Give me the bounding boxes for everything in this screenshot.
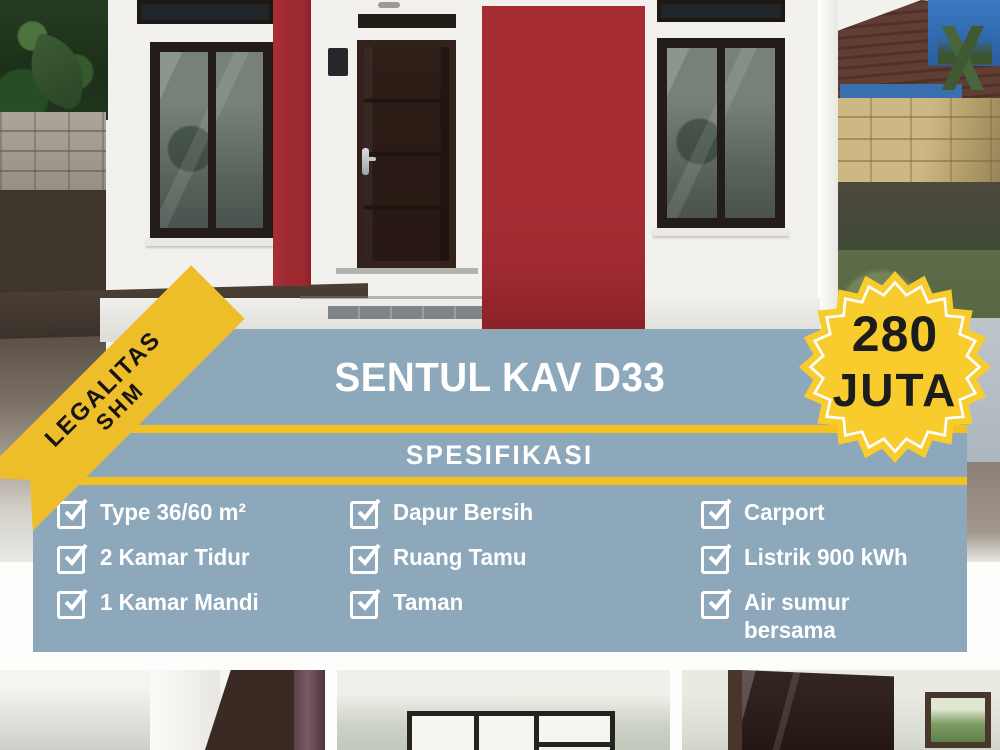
specification-panel: Type 36/60 m² 2 Kamar Tidur 1 Kamar Mand…: [33, 485, 967, 652]
door-transom: [358, 14, 456, 28]
spec-column-2: Dapur Bersih Ruang Tamu Taman: [350, 498, 670, 619]
concrete-block-wall: [0, 112, 106, 192]
spec-item-type: Type 36/60 m²: [57, 498, 352, 529]
spec-item-carport: Carport: [701, 498, 956, 529]
checked-checkbox-icon: [350, 546, 378, 574]
interior-photo-2: [337, 670, 670, 750]
price-amount: 280: [799, 305, 991, 363]
checked-checkbox-icon: [57, 501, 85, 529]
front-door: [357, 40, 456, 268]
door-frame: [294, 670, 325, 750]
spec-item-bathroom: 1 Kamar Mandi: [57, 588, 352, 619]
spec-item-garden: Taman: [350, 588, 670, 619]
left-window: [150, 42, 273, 238]
spec-item-bedrooms: 2 Kamar Tidur: [57, 543, 352, 574]
specification-header: SPESIFIKASI: [406, 440, 594, 471]
interior-photo-3: [682, 670, 1000, 750]
real-estate-flyer: SENTUL KAV D33 SPESIFIKASI Type 36/60 m²…: [0, 0, 1000, 750]
right-transom-window: [657, 0, 785, 22]
doormat-tiles: [328, 306, 486, 319]
spec-item-electricity: Listrik 900 kWh: [701, 543, 956, 574]
small-garden-window: [925, 692, 991, 748]
left-window-sill: [146, 238, 277, 246]
porch-light: [378, 2, 400, 8]
red-accent-wall-right: [482, 6, 645, 340]
door-shadow: [336, 268, 478, 274]
checked-checkbox-icon: [701, 501, 729, 529]
right-window: [657, 38, 785, 228]
trees-background: [0, 0, 108, 120]
door-frame: [728, 670, 742, 750]
checked-checkbox-icon: [350, 591, 378, 619]
listing-title: SENTUL KAV D33: [335, 354, 666, 401]
window-mullion: [474, 716, 479, 750]
spec-column-3: Carport Listrik 900 kWh Air sumur bersam…: [701, 498, 956, 644]
banana-leaf: [20, 32, 97, 111]
left-transom-window: [137, 0, 273, 24]
electric-meter: [328, 48, 348, 76]
interior-photo-1: [0, 670, 325, 750]
checked-checkbox-icon: [701, 591, 729, 619]
price-unit: JUTA: [799, 363, 991, 417]
room-window: [407, 711, 615, 750]
plant: [938, 26, 992, 90]
spec-column-1: Type 36/60 m² 2 Kamar Tidur 1 Kamar Mand…: [57, 498, 352, 619]
checked-checkbox-icon: [57, 591, 85, 619]
checked-checkbox-icon: [350, 501, 378, 529]
open-dark-door: [742, 670, 894, 750]
spec-item-water: Air sumur bersama: [701, 588, 956, 644]
rocky-slope: [830, 182, 1000, 254]
checked-checkbox-icon: [701, 546, 729, 574]
stone-wall-right: [830, 98, 1000, 184]
price-badge: 280 JUTA: [799, 271, 991, 463]
red-accent-wall-left: [273, 0, 311, 286]
yellow-divider-bottom: [33, 477, 967, 485]
door-handle-icon: [362, 148, 369, 175]
right-window-sill: [653, 228, 789, 236]
spec-item-kitchen: Dapur Bersih: [350, 498, 670, 529]
spec-item-livingroom: Ruang Tamu: [350, 543, 670, 574]
checked-checkbox-icon: [57, 546, 85, 574]
